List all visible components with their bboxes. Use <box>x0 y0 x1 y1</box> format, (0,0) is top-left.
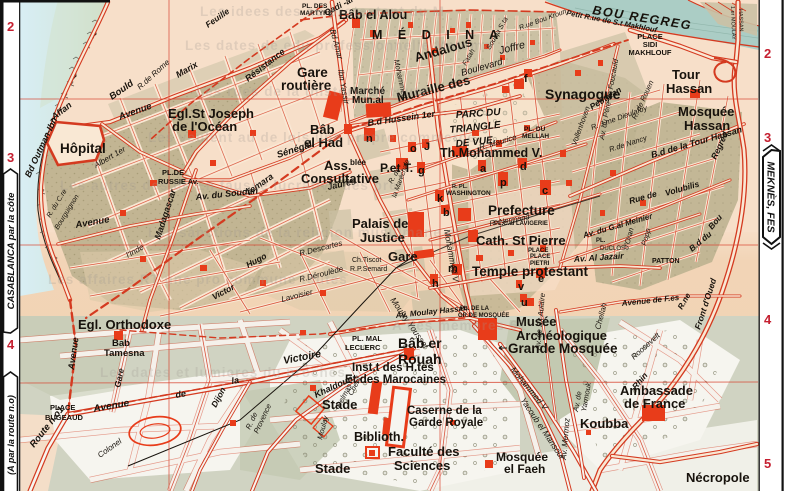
svg-text:Egl. Orthodoxe: Egl. Orthodoxe <box>78 317 171 332</box>
svg-text:k: k <box>437 193 444 205</box>
svg-text:Les dates et lumieres du proch: Les dates et lumieres du proches <box>100 365 346 380</box>
svg-text:Les sanctions de la religion m: Les sanctions de la religion musulmane e… <box>148 225 461 240</box>
svg-text:MEKNÈS, FES: MEKNÈS, FES <box>765 161 778 232</box>
svg-text:Garde Royale: Garde Royale <box>409 417 483 429</box>
svg-text:3: 3 <box>7 150 14 165</box>
svg-text:a: a <box>480 163 487 175</box>
svg-text:A des membres 61: A des membres 61 <box>392 318 527 333</box>
svg-text:3: 3 <box>764 130 771 145</box>
svg-text:5: 5 <box>764 456 771 471</box>
svg-text:Biblioth.: Biblioth. <box>354 430 404 444</box>
svg-text:Grande Mosquée: Grande Mosquée <box>508 341 618 356</box>
svg-text:d: d <box>520 161 527 173</box>
svg-text:PL.DE: PL.DE <box>162 168 184 177</box>
svg-text:R.P.Semard: R.P.Semard <box>350 266 387 273</box>
svg-text:PLACE: PLACE <box>528 248 548 254</box>
svg-text:Ch.Tiscot: Ch.Tiscot <box>352 257 381 264</box>
svg-text:c: c <box>542 185 548 197</box>
svg-text:Koubba: Koubba <box>580 416 629 431</box>
svg-text:Hassan: Hassan <box>666 81 712 96</box>
svg-text:e: e <box>538 273 544 285</box>
svg-text:4: 4 <box>7 337 15 352</box>
svg-text:PL. MAL: PL. MAL <box>352 334 382 343</box>
svg-text:el Faeh: el Faeh <box>504 462 545 476</box>
svg-text:Cath. St Pierre: Cath. St Pierre <box>476 233 566 248</box>
svg-text:m: m <box>448 263 458 275</box>
svg-text:MELLAH: MELLAH <box>522 133 549 140</box>
svg-text:Inst.t des H.tes: Inst.t des H.tes <box>352 362 434 374</box>
svg-text:p: p <box>500 177 507 189</box>
svg-text:f: f <box>524 73 528 85</box>
svg-text:2: 2 <box>764 46 771 61</box>
svg-text:HASSAN: HASSAN <box>737 9 744 32</box>
svg-text:Gare: Gare <box>388 249 418 264</box>
svg-text:Tamesna: Tamesna <box>104 348 145 359</box>
svg-text:CASABLANCA par la côte: CASABLANCA par la côte <box>6 192 17 310</box>
svg-text:Les dates de edu professionne: Les dates de edu professionnelle Matoma <box>185 38 492 53</box>
svg-text:Sciences: Sciences <box>394 458 450 473</box>
svg-text:WASHINGTON: WASHINGTON <box>446 190 491 197</box>
svg-text:Faculté des: Faculté des <box>388 444 460 459</box>
svg-text:R. PL.: R. PL. <box>452 184 468 190</box>
svg-text:h: h <box>432 278 439 290</box>
svg-text:MAKHLOUF: MAKHLOUF <box>629 48 672 57</box>
svg-text:Hôpital: Hôpital <box>60 141 106 156</box>
svg-text:de: de <box>175 388 187 400</box>
svg-text:Nécropole: Nécropole <box>686 470 750 485</box>
svg-text:PL. DE LA: PL. DE LA <box>460 306 490 312</box>
svg-text:Caserne de la: Caserne de la <box>407 405 482 417</box>
svg-text:Les autres des de En fausse lu: Les autres des de En fausse lucrative de… <box>60 178 398 193</box>
svg-text:1.er MOULAY: 1.er MOULAY <box>729 6 736 40</box>
svg-text:Les affaires RT une pro com: Les affaires RT une pro commune toutes <box>48 272 348 287</box>
svg-text:LECLERC: LECLERC <box>345 343 381 352</box>
svg-text:de France: de France <box>624 396 685 411</box>
svg-text:PL.: PL. <box>596 238 606 244</box>
svg-text:Les veulent au de lois une pro: Les veulent au de lois une propre commer… <box>148 130 476 145</box>
svg-text:DUCLOS: DUCLOS <box>600 246 625 252</box>
svg-text:PL. DU: PL. DU <box>524 126 546 133</box>
svg-text:Stade: Stade <box>315 461 350 476</box>
svg-text:Mosquée: Mosquée <box>678 104 734 119</box>
svg-text:v: v <box>518 281 525 293</box>
svg-text:b: b <box>443 207 450 219</box>
svg-text:g: g <box>418 165 425 177</box>
svg-text:u: u <box>521 297 528 309</box>
svg-text:4: 4 <box>764 312 772 327</box>
svg-text:Tour: Tour <box>672 67 700 82</box>
svg-text:2: 2 <box>7 19 14 34</box>
svg-text:PATTON: PATTON <box>652 258 680 265</box>
svg-text:PLACE: PLACE <box>530 254 550 260</box>
svg-text:Les rues de la thistorique t: Les rues de la thistorique toute <box>196 84 428 99</box>
svg-text:PIETRI: PIETRI <box>530 261 550 267</box>
svg-text:(A par la route n.o): (A par la route n.o) <box>6 395 16 475</box>
svg-text:blée: blée <box>350 158 367 167</box>
svg-text:Les idees des au protestant du: Les idees des au protestant du M <box>200 4 445 19</box>
